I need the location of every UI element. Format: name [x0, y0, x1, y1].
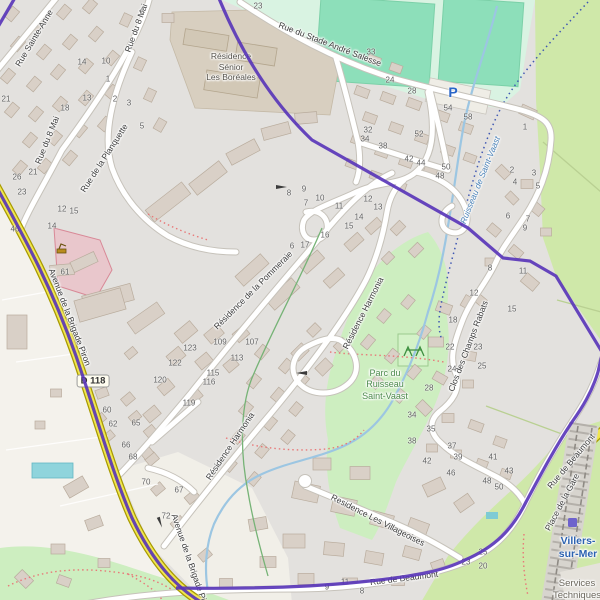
building	[429, 337, 444, 347]
pool	[486, 512, 498, 519]
building	[427, 444, 438, 452]
building	[51, 389, 62, 397]
building	[442, 414, 454, 423]
building	[51, 544, 65, 554]
building	[350, 467, 370, 480]
train-station-icon	[568, 518, 577, 527]
building	[220, 579, 233, 588]
building	[313, 458, 331, 470]
sports-pitches	[315, 0, 524, 88]
building	[298, 574, 314, 585]
building	[295, 112, 318, 125]
building	[7, 315, 27, 349]
map-canvas[interactable]: Rue Sainte-Anne Rue du 8 Mai Rue du 8 Ma…	[0, 0, 600, 600]
building	[98, 559, 110, 568]
building	[541, 228, 552, 236]
pool	[32, 463, 73, 478]
map-base-layer	[0, 0, 600, 600]
culdesac-head	[299, 475, 312, 488]
building	[50, 263, 75, 276]
building	[521, 180, 533, 189]
building	[323, 542, 344, 557]
building	[35, 421, 45, 429]
building	[283, 534, 305, 548]
building	[463, 380, 474, 388]
building	[162, 14, 174, 23]
building	[463, 351, 476, 362]
